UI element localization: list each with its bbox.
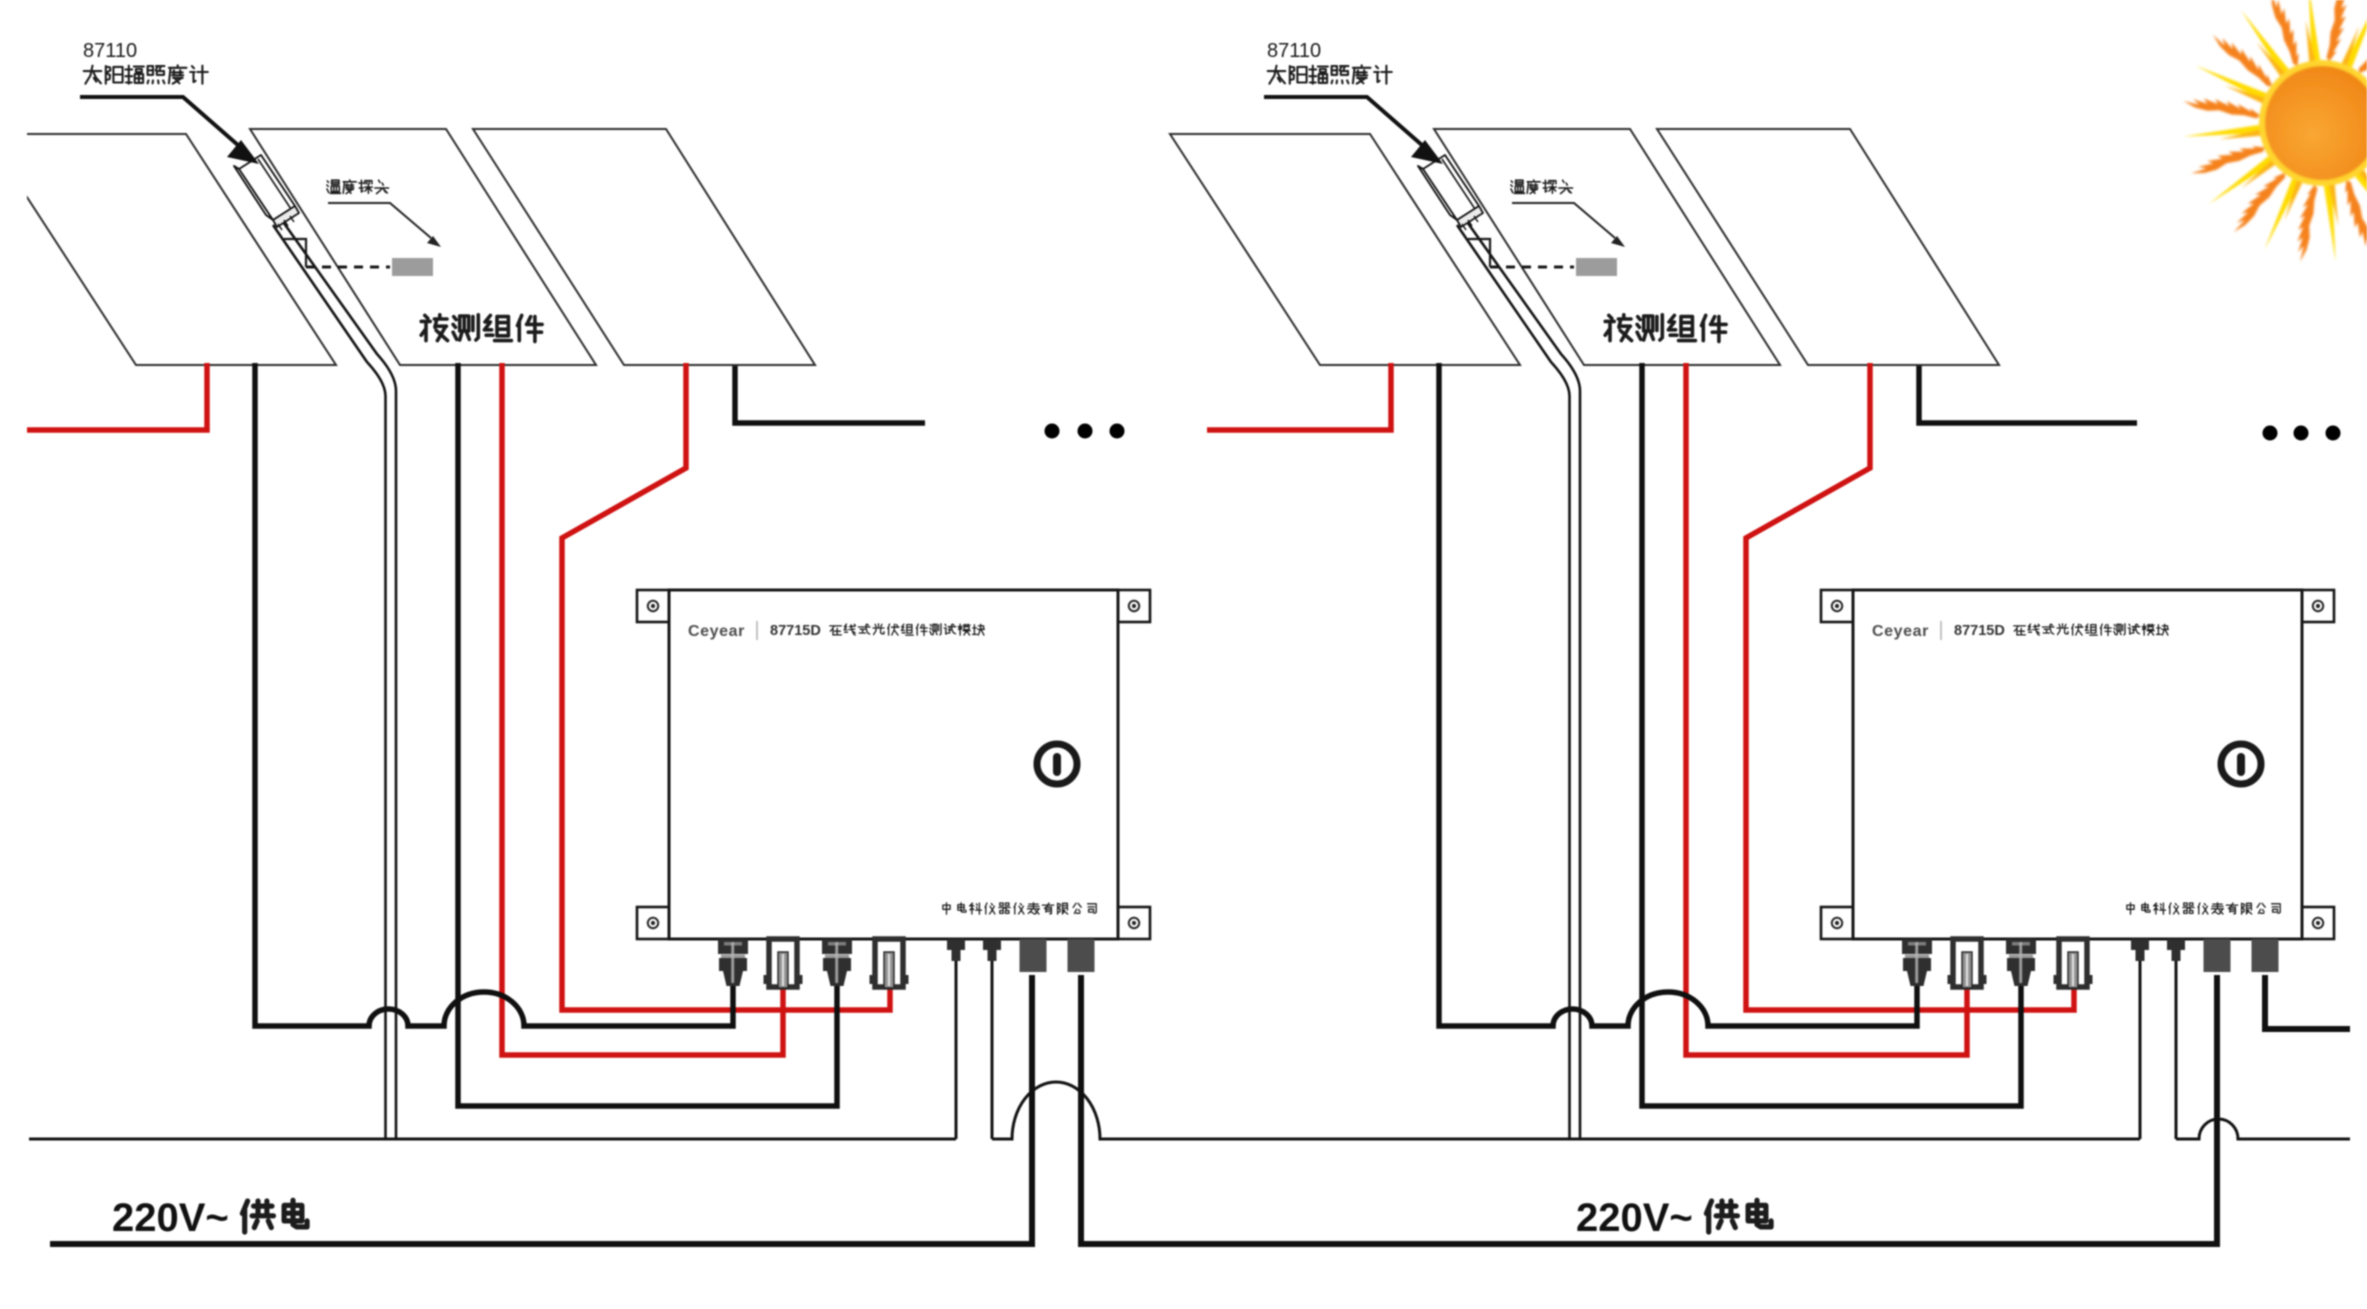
svg-text:220V~: 220V~ (1576, 1196, 1693, 1240)
svg-text:220V~: 220V~ (112, 1196, 229, 1240)
